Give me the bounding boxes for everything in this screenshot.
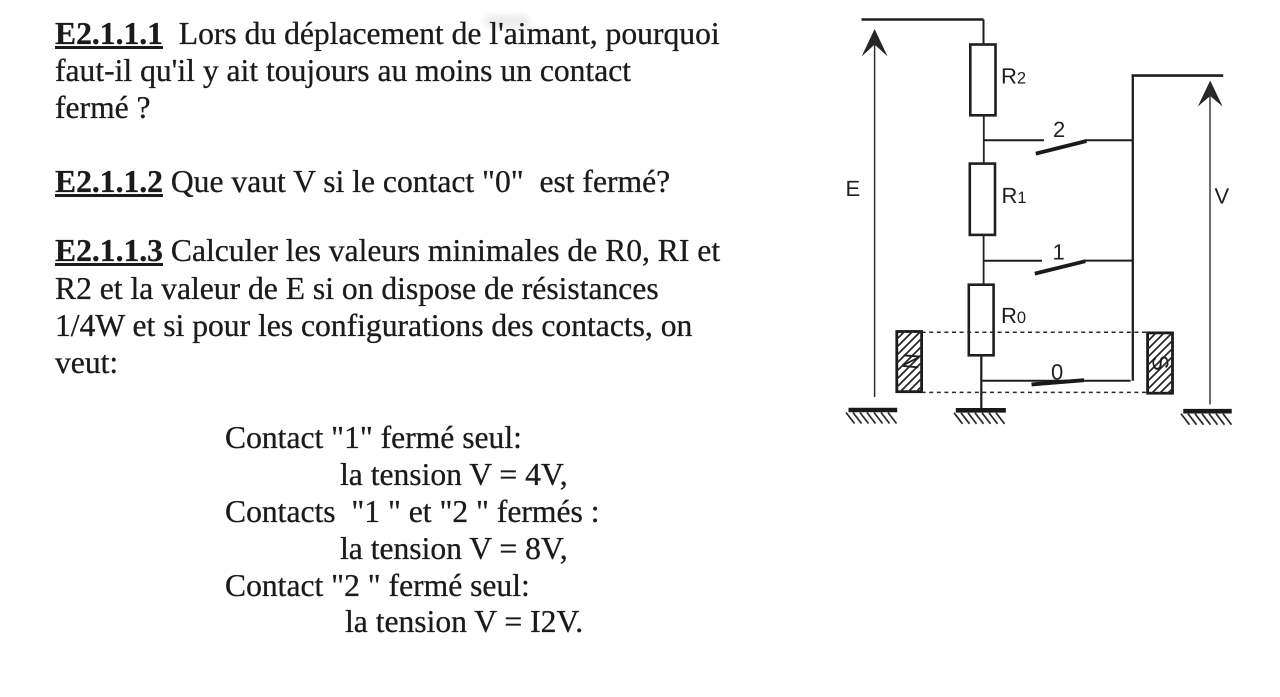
svg-text:1: 1 bbox=[1053, 240, 1065, 265]
svg-text:2: 2 bbox=[1053, 117, 1065, 142]
svg-text:E: E bbox=[846, 176, 861, 201]
svg-text:R2: R2 bbox=[1001, 64, 1026, 89]
svg-text:V: V bbox=[1215, 184, 1230, 209]
svg-text:N: N bbox=[898, 352, 924, 370]
svg-text:0: 0 bbox=[1051, 359, 1063, 384]
svg-text:R1: R1 bbox=[1002, 183, 1027, 208]
svg-text:R0: R0 bbox=[1001, 303, 1026, 328]
